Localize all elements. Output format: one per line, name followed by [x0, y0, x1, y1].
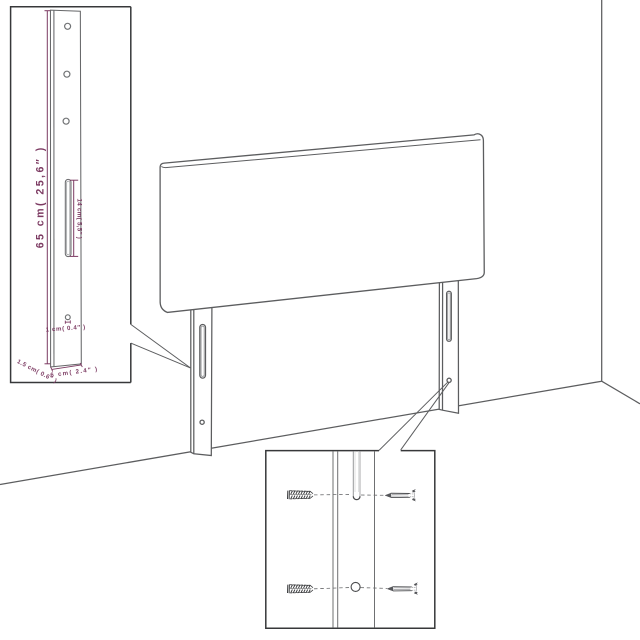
- svg-text:65 cm( 25,6″ ): 65 cm( 25,6″ ): [34, 145, 46, 248]
- svg-text:14 cm( 5,5″ ): 14 cm( 5,5″ ): [76, 199, 83, 240]
